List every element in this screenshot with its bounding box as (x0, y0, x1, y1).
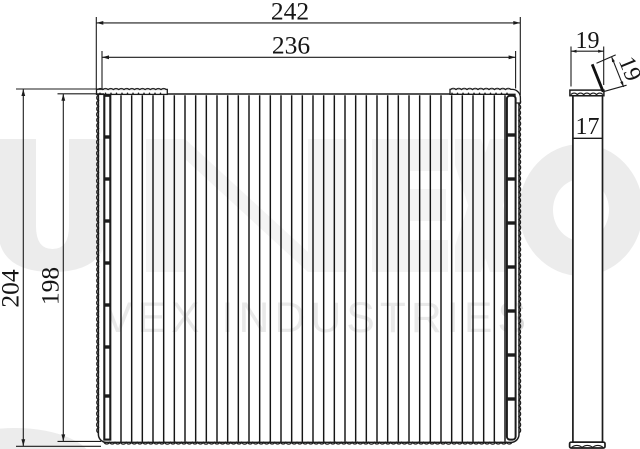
svg-text:204: 204 (0, 269, 25, 308)
svg-text:19: 19 (576, 28, 600, 54)
svg-text:236: 236 (272, 31, 310, 60)
svg-text:198: 198 (36, 267, 65, 305)
svg-text:242: 242 (271, 0, 309, 26)
svg-text:17: 17 (576, 114, 600, 140)
